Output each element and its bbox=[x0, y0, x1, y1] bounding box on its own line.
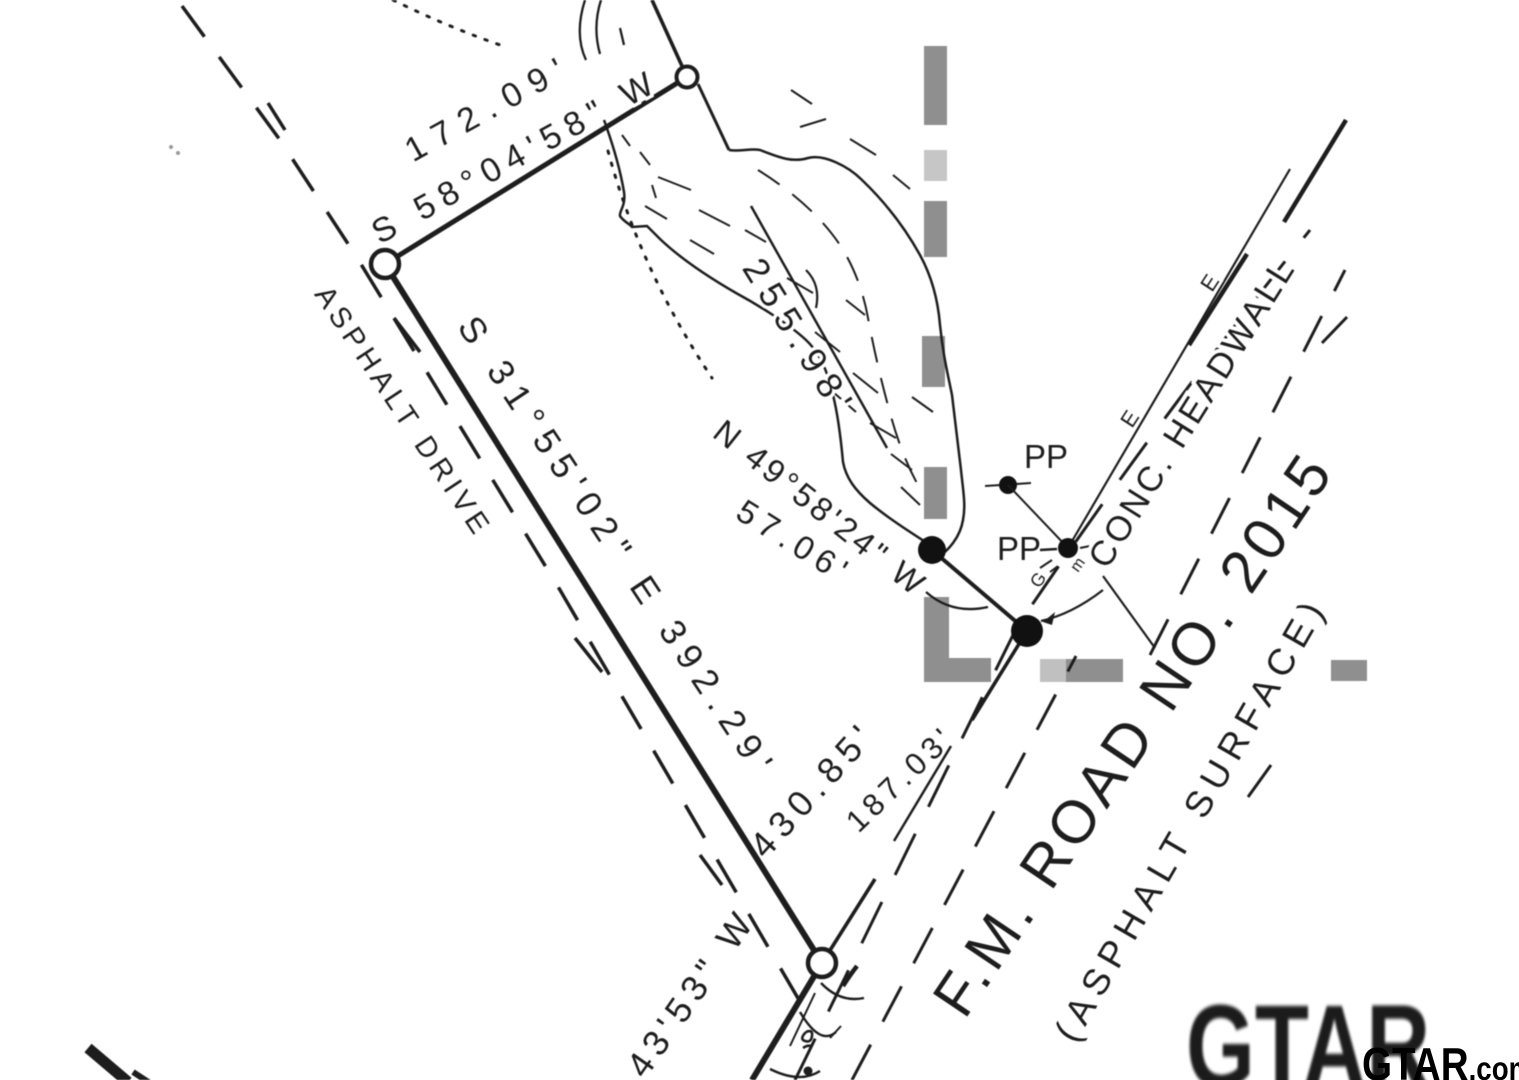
svg-text:PP: PP bbox=[1024, 438, 1068, 475]
svg-text:PP: PP bbox=[997, 530, 1041, 567]
